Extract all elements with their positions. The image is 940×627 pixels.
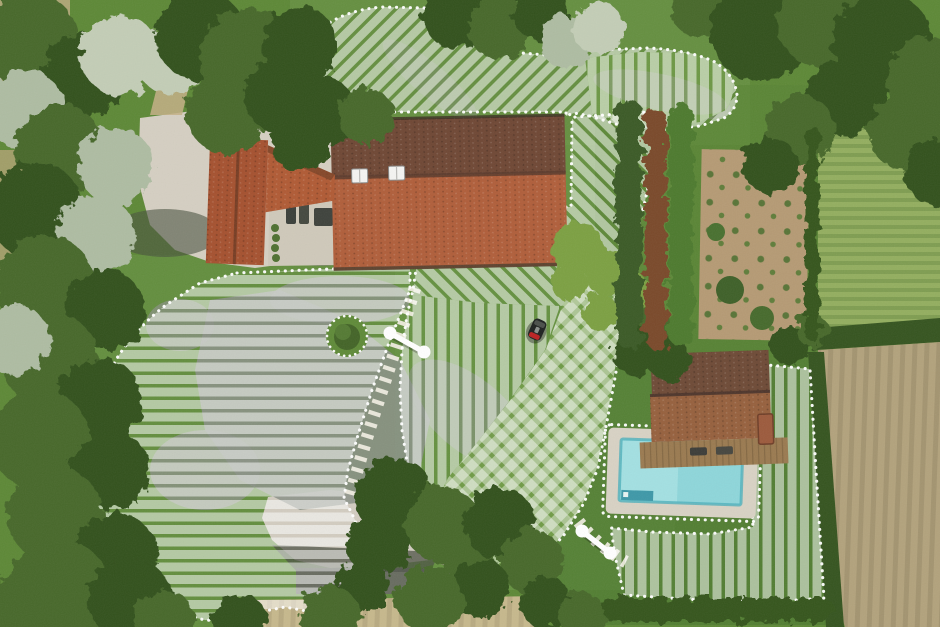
aerial-property-map bbox=[0, 0, 940, 627]
photo-grain bbox=[0, 0, 940, 627]
map-canvas bbox=[0, 0, 940, 627]
